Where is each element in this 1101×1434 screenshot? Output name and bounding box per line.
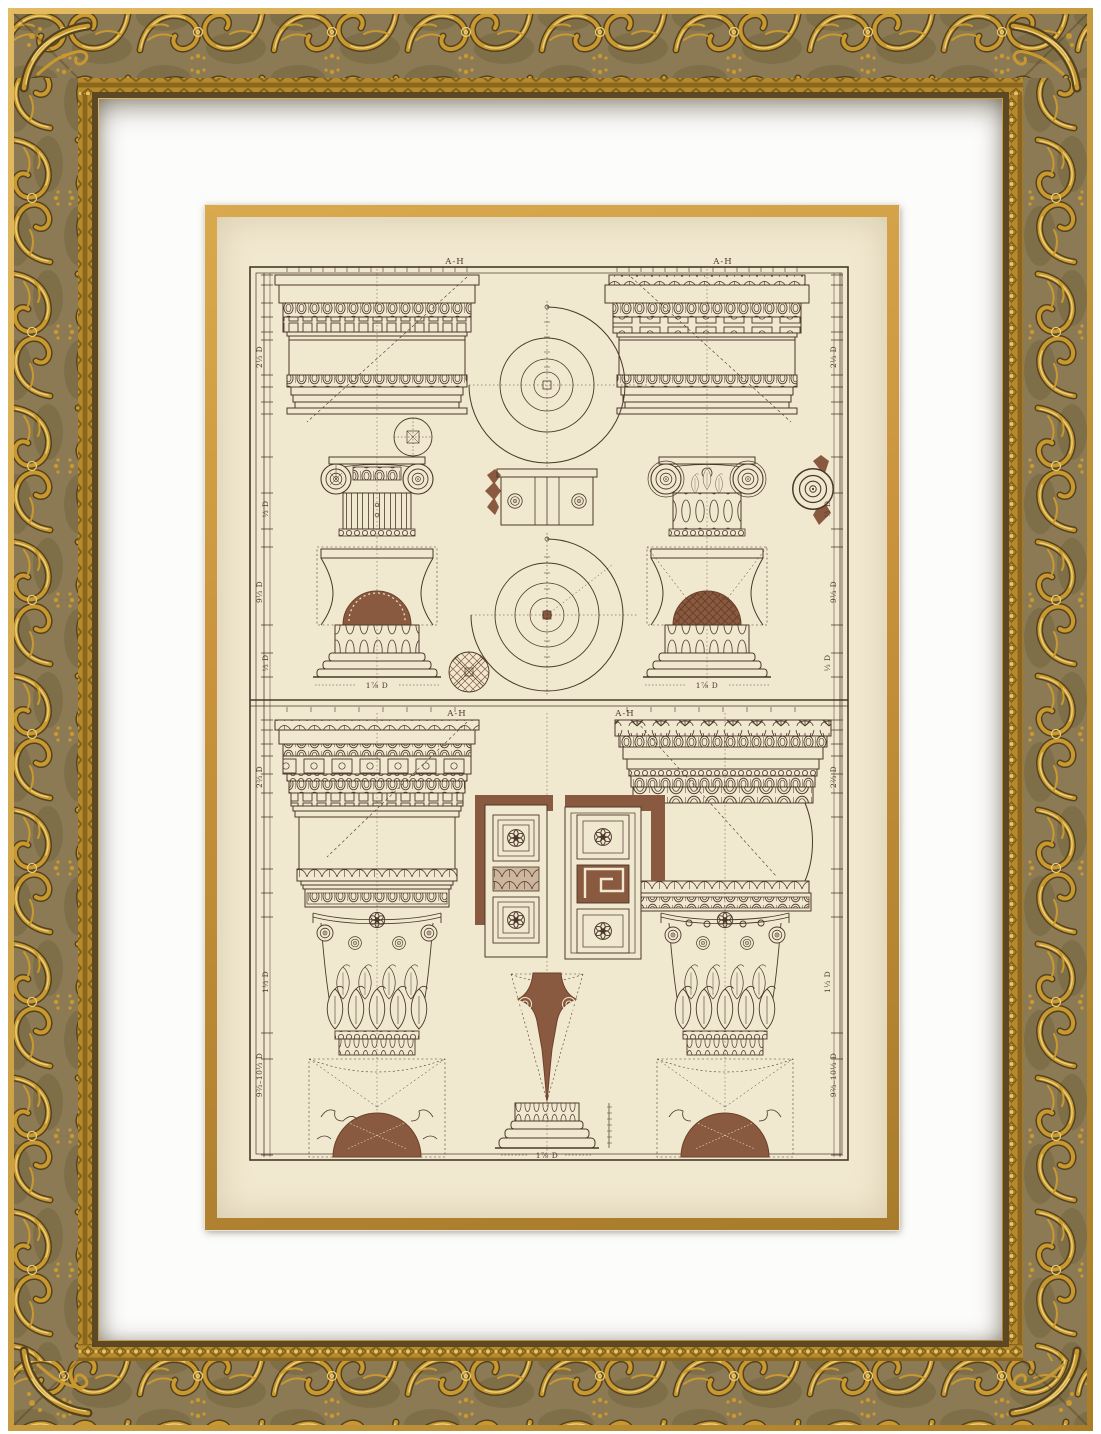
ionic-capital-left <box>321 457 433 536</box>
section-bottom-label-right: A-H <box>614 709 634 719</box>
section-top-label-right: A-H <box>712 257 732 267</box>
volute-construction-bottom <box>471 533 637 695</box>
dim-label: 1⅓ D <box>823 971 832 993</box>
coffered-soffit-detail <box>475 795 665 959</box>
console-bracket-detail <box>511 973 583 1101</box>
dim-label: 9⅔–10⅓ D <box>255 1053 264 1097</box>
dim-label: 9⅔–10⅓ D <box>829 1053 838 1097</box>
capital-bolster-side-view <box>485 469 597 525</box>
dim-label: 2⅔ D <box>255 766 264 788</box>
dim-label: ⅓ D <box>823 655 832 672</box>
column-base-center <box>495 1103 612 1155</box>
print: A-H A-H 1⅞ D 1⅞ D A-H A-H 1⅞ D 2⅓ D ⅓ D … <box>205 205 899 1230</box>
dim-label: 9⅓ D <box>255 581 264 603</box>
paper: A-H A-H 1⅞ D 1⅞ D A-H A-H 1⅞ D 2⅓ D ⅓ D … <box>217 217 887 1218</box>
engraving-plate: A-H A-H 1⅞ D 1⅞ D A-H A-H 1⅞ D 2⅓ D ⅓ D … <box>217 217 887 1218</box>
ionic-angle-study-right <box>643 547 771 685</box>
dim-label: 2⅓ D <box>255 346 264 368</box>
dim-label: ⅓ D <box>261 501 270 518</box>
volute-eye-detail <box>394 418 432 456</box>
ionic-capital-right <box>648 457 766 536</box>
ionic-angle-study-left <box>313 547 441 685</box>
dim-label: ⅓ D <box>261 655 270 672</box>
base-width-label-right: 1⅞ D <box>696 681 718 690</box>
dim-label: ⅓ D <box>823 501 832 518</box>
dim-label: 1⅓ D <box>261 971 270 993</box>
base-width-label-left: 1⅞ D <box>366 681 388 690</box>
corinthian-entablature-right <box>615 720 831 911</box>
section-top-label-left: A-H <box>444 257 464 267</box>
section-bottom-label-left: A-H <box>446 709 466 719</box>
framed-architectural-print: A-H A-H 1⅞ D 1⅞ D A-H A-H 1⅞ D 2⅓ D ⅓ D … <box>0 0 1101 1434</box>
dim-label: 2⅓ D <box>829 346 838 368</box>
dim-label: 9⅓ D <box>829 581 838 603</box>
base-width-label-center: 1⅞ D <box>536 1151 558 1160</box>
dim-label: 2⅔ D <box>829 766 838 788</box>
hatched-circle-detail <box>449 652 489 692</box>
